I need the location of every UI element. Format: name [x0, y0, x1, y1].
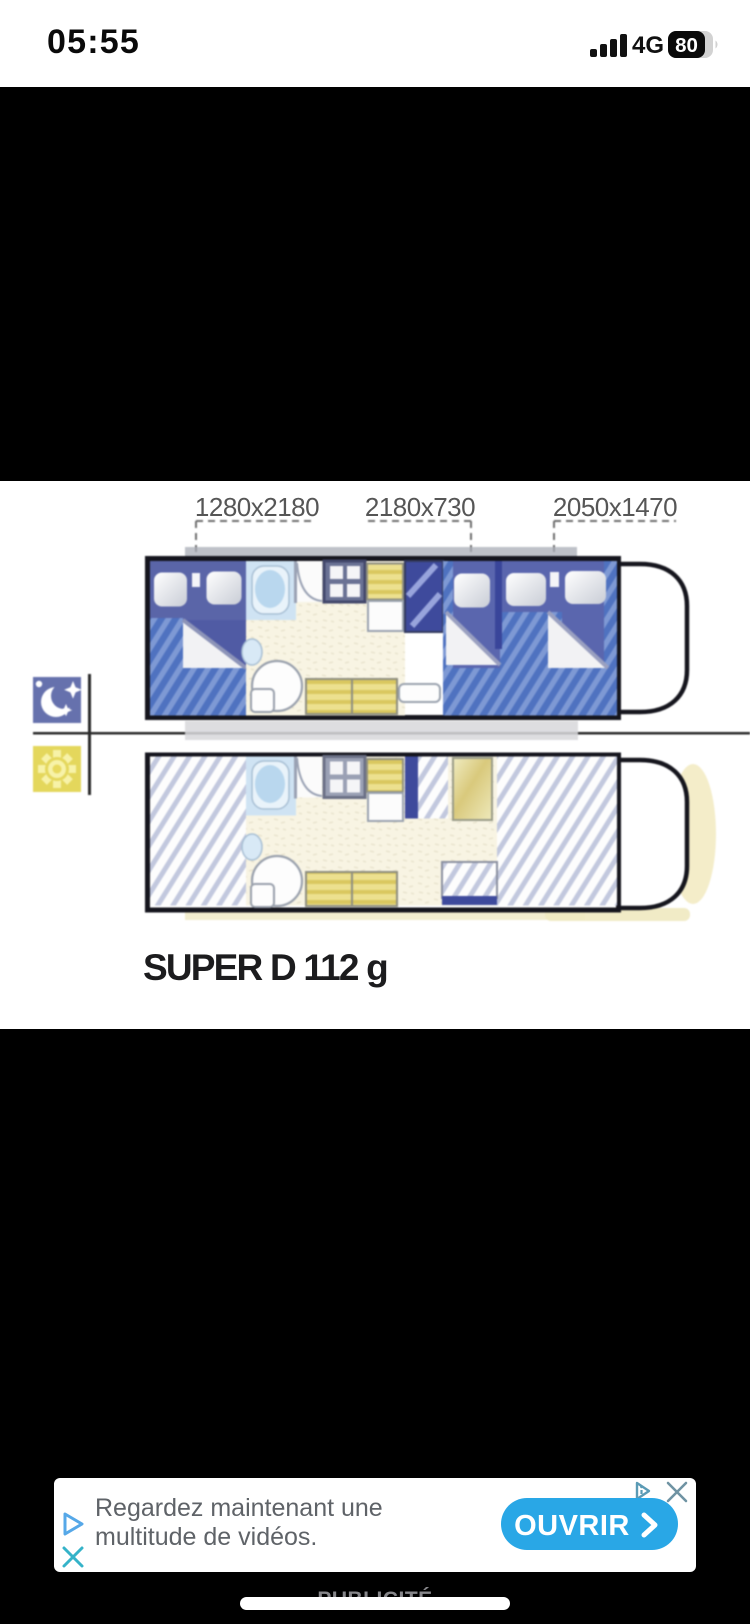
- svg-text:80: 80: [675, 34, 698, 57]
